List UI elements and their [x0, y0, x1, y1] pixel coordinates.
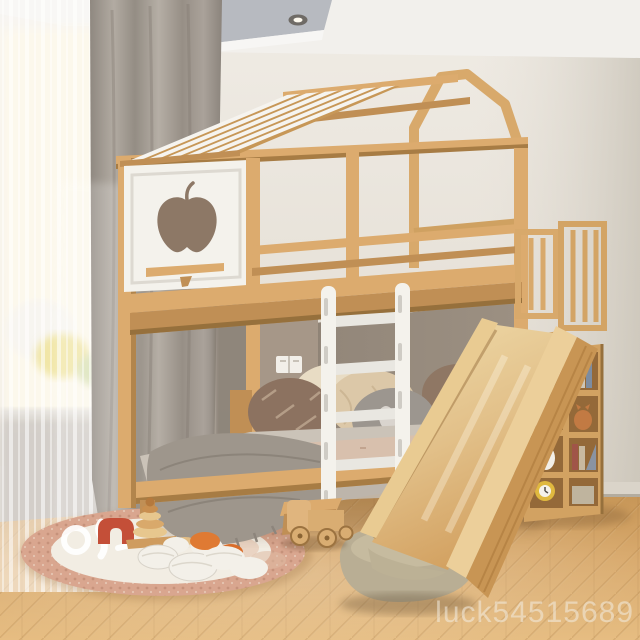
downlight-glow: [294, 18, 303, 23]
pebble-plush: [230, 557, 268, 579]
apple-gable-panel: [124, 160, 248, 292]
stacker-knob: [146, 498, 155, 507]
apple-cutout-icon: [157, 197, 216, 252]
mid-post: [346, 148, 359, 294]
watermark-text: luck54515689: [435, 596, 634, 629]
book-spine: [579, 446, 585, 470]
truck-bed: [308, 510, 344, 531]
storage-box: [572, 486, 594, 504]
ladder-rail-left: [321, 286, 336, 516]
truck-wheel: [340, 527, 353, 540]
wheel-hub: [298, 534, 303, 539]
room-scene: luck54515689: [0, 0, 640, 640]
wheel-hub: [325, 536, 330, 541]
fox-body: [574, 410, 592, 430]
book-spine: [572, 444, 578, 470]
kids-room-photo: luck54515689: [0, 0, 640, 640]
